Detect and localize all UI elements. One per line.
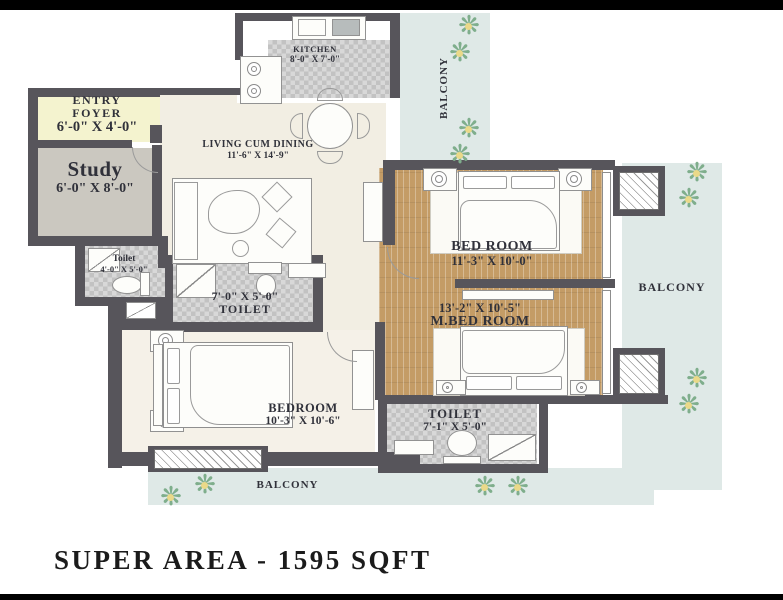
- wc: [447, 430, 477, 456]
- window: [602, 172, 611, 278]
- shower: [488, 434, 536, 461]
- bed-room-dims: 11'-3" X 10'-0": [412, 255, 572, 268]
- pillow: [466, 376, 512, 390]
- wall: [108, 300, 122, 468]
- wardrobe: [154, 449, 262, 469]
- blanket: [462, 330, 565, 374]
- flower-icon: ❋: [676, 186, 702, 212]
- pillow: [167, 388, 180, 424]
- wall: [539, 404, 548, 468]
- wall: [36, 140, 132, 148]
- bottom-bar: [0, 594, 783, 600]
- balcony-right-label: BALCONY: [622, 281, 722, 294]
- tv-unit: [363, 182, 383, 242]
- wc-tank: [248, 262, 282, 274]
- wall: [28, 236, 168, 246]
- headboard: [153, 344, 163, 426]
- wall: [383, 160, 395, 245]
- pillow: [463, 176, 507, 189]
- wall: [75, 246, 85, 304]
- window: [602, 290, 611, 394]
- flower-icon: ❋: [505, 474, 531, 500]
- toilet-small-dims: 4'-0" X 5'-0": [85, 265, 163, 274]
- flower-icon: ❋: [684, 160, 710, 186]
- wall: [165, 255, 173, 330]
- lamp-icon: [442, 382, 453, 393]
- wall: [375, 322, 385, 400]
- super-area-label: SUPER AREA - 1595 SQFT: [54, 545, 432, 576]
- wall: [455, 279, 615, 288]
- floor-plan: BALCONY BALCONY BALCONY: [0, 0, 783, 600]
- wall: [235, 13, 243, 60]
- burner-icon: [247, 84, 261, 98]
- toilet-common-dims: 7'-0" X 5'-0": [175, 290, 315, 303]
- pillow: [167, 348, 180, 384]
- entry-foyer-label-2: FOYER: [37, 107, 157, 120]
- bedroom-label: BEDROOM: [223, 402, 383, 415]
- study-label: Study: [38, 158, 152, 180]
- dresser: [462, 290, 554, 300]
- living-dims: 11'-6" X 14'-9": [178, 152, 338, 162]
- flower-icon: ❋: [447, 142, 473, 168]
- entry-foyer-dims: 6'-0" X 4'-0": [37, 120, 157, 135]
- bedroom-dims: 10'-3" X 10'-6": [223, 415, 383, 427]
- top-bar: [0, 0, 783, 10]
- flower-icon: ❋: [447, 40, 473, 66]
- window: [126, 302, 156, 319]
- entry-foyer-label-1: ENTRY: [37, 94, 157, 107]
- flower-icon: ❋: [456, 116, 482, 142]
- study-dims: 6'-0" X 8'-0": [38, 182, 152, 197]
- living-label: LIVING CUM DINING: [178, 140, 338, 151]
- wc-tank: [140, 272, 150, 296]
- wall: [390, 13, 400, 98]
- sofa: [174, 182, 198, 260]
- wc-base: [443, 456, 481, 464]
- wardrobe: [619, 172, 659, 210]
- lamp-icon: [431, 171, 447, 187]
- flower-icon: ❋: [676, 392, 702, 418]
- flower-icon: ❋: [192, 472, 218, 498]
- toilet-master-label: TOILET: [385, 408, 525, 421]
- toilet-common-label: TOILET: [175, 303, 315, 316]
- kitchen-drainboard: [332, 19, 360, 36]
- balcony-bottom-label: BALCONY: [205, 480, 370, 492]
- flower-icon: ❋: [158, 484, 184, 510]
- flower-icon: ❋: [472, 474, 498, 500]
- flower-icon: ❋: [456, 13, 482, 39]
- wash-basin: [288, 263, 326, 278]
- wall: [165, 322, 323, 332]
- kitchen-sink: [298, 19, 326, 36]
- lamp-icon: [576, 382, 587, 393]
- toilet-master-dims: 7'-1" X 5'-0": [385, 421, 525, 433]
- wash-basin: [394, 440, 434, 455]
- kitchen-label: KITCHEN: [255, 45, 375, 54]
- bed-room-label: BED ROOM: [412, 240, 572, 255]
- stool: [232, 240, 249, 257]
- wardrobe: [619, 354, 659, 394]
- wc: [112, 276, 142, 294]
- pillow: [511, 176, 555, 189]
- wall: [160, 88, 240, 95]
- master-bed-room-label: M.BED ROOM: [400, 315, 560, 330]
- kitchen-dims: 8'-0" X 7'-0": [255, 55, 375, 64]
- pillow: [516, 376, 562, 390]
- lamp-icon: [566, 171, 582, 187]
- flower-icon: ❋: [684, 366, 710, 392]
